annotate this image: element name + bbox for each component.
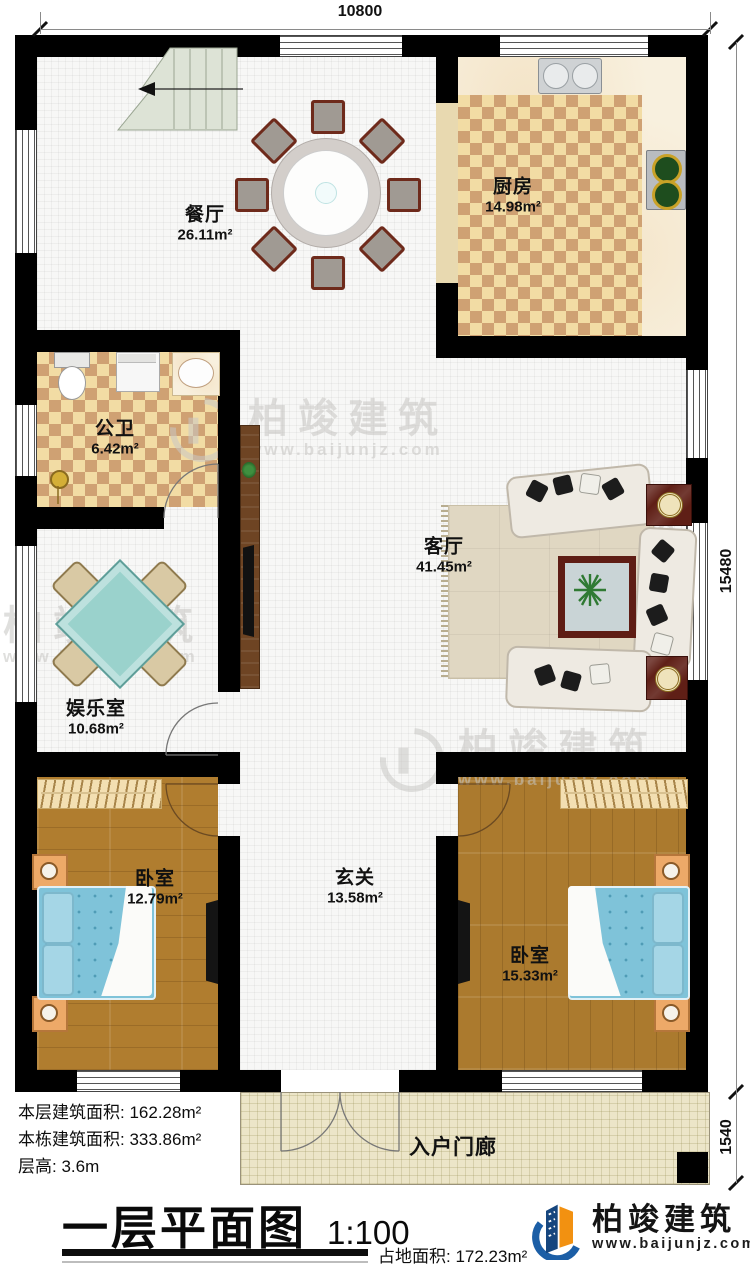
floor-plan-sheet: 柏竣建筑 www.baijunjz.com 柏竣建筑 www.baijunjz.…	[0, 0, 750, 1272]
brand-logo: 柏竣建筑 www.baijunjz.com	[528, 1196, 750, 1260]
bed-pillow	[42, 892, 74, 944]
info-label: 层高:	[18, 1157, 57, 1176]
kitchen-sink-basin	[572, 63, 598, 89]
dimension-extension	[710, 12, 711, 34]
wardrobe-rail	[564, 792, 682, 794]
nightstand-knob	[662, 862, 680, 880]
wall-segment	[15, 752, 240, 777]
room-label-bathroom: 公卫6.42m²	[91, 418, 139, 457]
sofa-pillow	[649, 573, 670, 594]
wall-segment	[15, 507, 164, 529]
room-label-dining: 餐厅26.11m²	[177, 204, 232, 243]
wall-segment	[15, 1070, 77, 1092]
brand-url: www.baijunjz.com	[592, 1236, 750, 1252]
bed-pillow	[652, 944, 684, 996]
watermark-logo-icon	[0, 592, 2, 682]
dining-chair	[387, 178, 421, 212]
dimension-extension	[40, 12, 41, 34]
washing-machine-panel	[118, 354, 156, 363]
dining-chair	[235, 178, 269, 212]
coffee-table	[558, 556, 636, 638]
room-label-bedroom-right: 卧室15.33m²	[502, 945, 558, 984]
nightstand-knob	[40, 862, 58, 880]
table-lamp	[655, 666, 681, 692]
dining-chair	[311, 100, 345, 134]
wall-segment	[436, 336, 708, 358]
bed-pillow	[42, 944, 74, 996]
site-area: 占地面积: 172.23m²	[378, 1243, 527, 1270]
room-label-bedroom-left: 卧室12.79m²	[127, 868, 183, 907]
nightstand-knob	[662, 1004, 680, 1022]
plant-on-cabinet	[242, 462, 256, 478]
nightstand-knob	[40, 1004, 58, 1022]
kitchen-sink-basin	[543, 63, 569, 89]
wall-segment	[642, 1070, 708, 1092]
wall-segment	[436, 777, 458, 784]
kitchen-threshold	[436, 103, 458, 283]
room-label-foyer: 玄关13.58m²	[327, 867, 383, 906]
wardrobe-rail	[41, 792, 156, 794]
nightstand	[32, 854, 68, 890]
info-floor-area: 本层建筑面积: 162.28m²	[18, 1099, 201, 1126]
wall-segment	[218, 330, 240, 692]
wall-segment	[436, 836, 458, 1092]
toilet-bowl	[58, 366, 86, 400]
stove-burner	[652, 180, 682, 210]
info-label: 本栋建筑面积:	[18, 1130, 125, 1149]
table-lamp	[657, 492, 683, 518]
info-value: 172.23m²	[455, 1247, 527, 1266]
wall-segment	[15, 330, 240, 352]
wall-segment	[686, 35, 708, 370]
window	[77, 1070, 180, 1092]
tv-bedroom-right	[458, 900, 470, 984]
nightstand	[654, 854, 690, 890]
window	[686, 370, 708, 458]
room-label-kitchen: 厨房14.98m²	[485, 176, 541, 215]
wall-segment	[436, 752, 708, 777]
wall-segment	[15, 35, 280, 57]
window	[280, 35, 402, 57]
dining-table-center	[315, 182, 337, 204]
wall-segment	[15, 35, 37, 130]
nightstand	[32, 996, 68, 1032]
window	[502, 1070, 642, 1092]
wardrobe	[560, 779, 688, 809]
bed-pillow	[652, 892, 684, 944]
info-value: 162.28m²	[129, 1103, 201, 1122]
window	[15, 405, 37, 476]
info-floor-height: 层高: 3.6m	[18, 1153, 201, 1180]
dimension-line-right	[736, 42, 737, 1183]
wardrobe	[37, 779, 162, 809]
info-value: 333.86m²	[129, 1130, 201, 1149]
info-label: 占地面积:	[378, 1247, 451, 1266]
dimension-porch-height: 1540	[718, 1097, 736, 1177]
wall-segment	[15, 253, 37, 405]
rug-fringe	[441, 505, 448, 677]
tv-living	[243, 545, 254, 637]
wall-segment	[402, 35, 500, 57]
bathroom-sink	[178, 358, 214, 388]
room-label-living: 客厅41.45m²	[416, 536, 472, 575]
info-label: 本层建筑面积:	[18, 1103, 125, 1122]
title-underline	[62, 1249, 368, 1256]
tv-bedroom-left	[206, 900, 218, 984]
nightstand	[654, 996, 690, 1032]
floor-drain	[50, 470, 69, 489]
room-label-entertainment: 娱乐室10.68m²	[66, 698, 126, 737]
dimension-width: 10800	[310, 3, 410, 21]
window	[15, 546, 37, 702]
wall-segment	[436, 57, 458, 103]
brand-logo-icon	[528, 1196, 582, 1260]
info-building-area: 本栋建筑面积: 333.86m²	[18, 1126, 201, 1153]
brand-name: 柏竣建筑	[592, 1204, 750, 1237]
dining-chair	[311, 256, 345, 290]
sofa-pillow	[589, 663, 611, 685]
sofa-pillow	[579, 473, 602, 496]
porch-corner-post	[677, 1152, 708, 1183]
window	[15, 130, 37, 253]
room-label-porch: 入户门廊	[409, 1136, 497, 1160]
info-block: 本层建筑面积: 162.28m² 本栋建筑面积: 333.86m² 层高: 3.…	[18, 1099, 201, 1180]
wall-segment	[218, 836, 240, 1092]
dimension-line-top	[40, 29, 710, 30]
dimension-height: 15480	[718, 531, 736, 611]
window	[500, 35, 648, 57]
title-underline-shadow	[62, 1261, 368, 1263]
info-value: 3.6m	[61, 1157, 99, 1176]
